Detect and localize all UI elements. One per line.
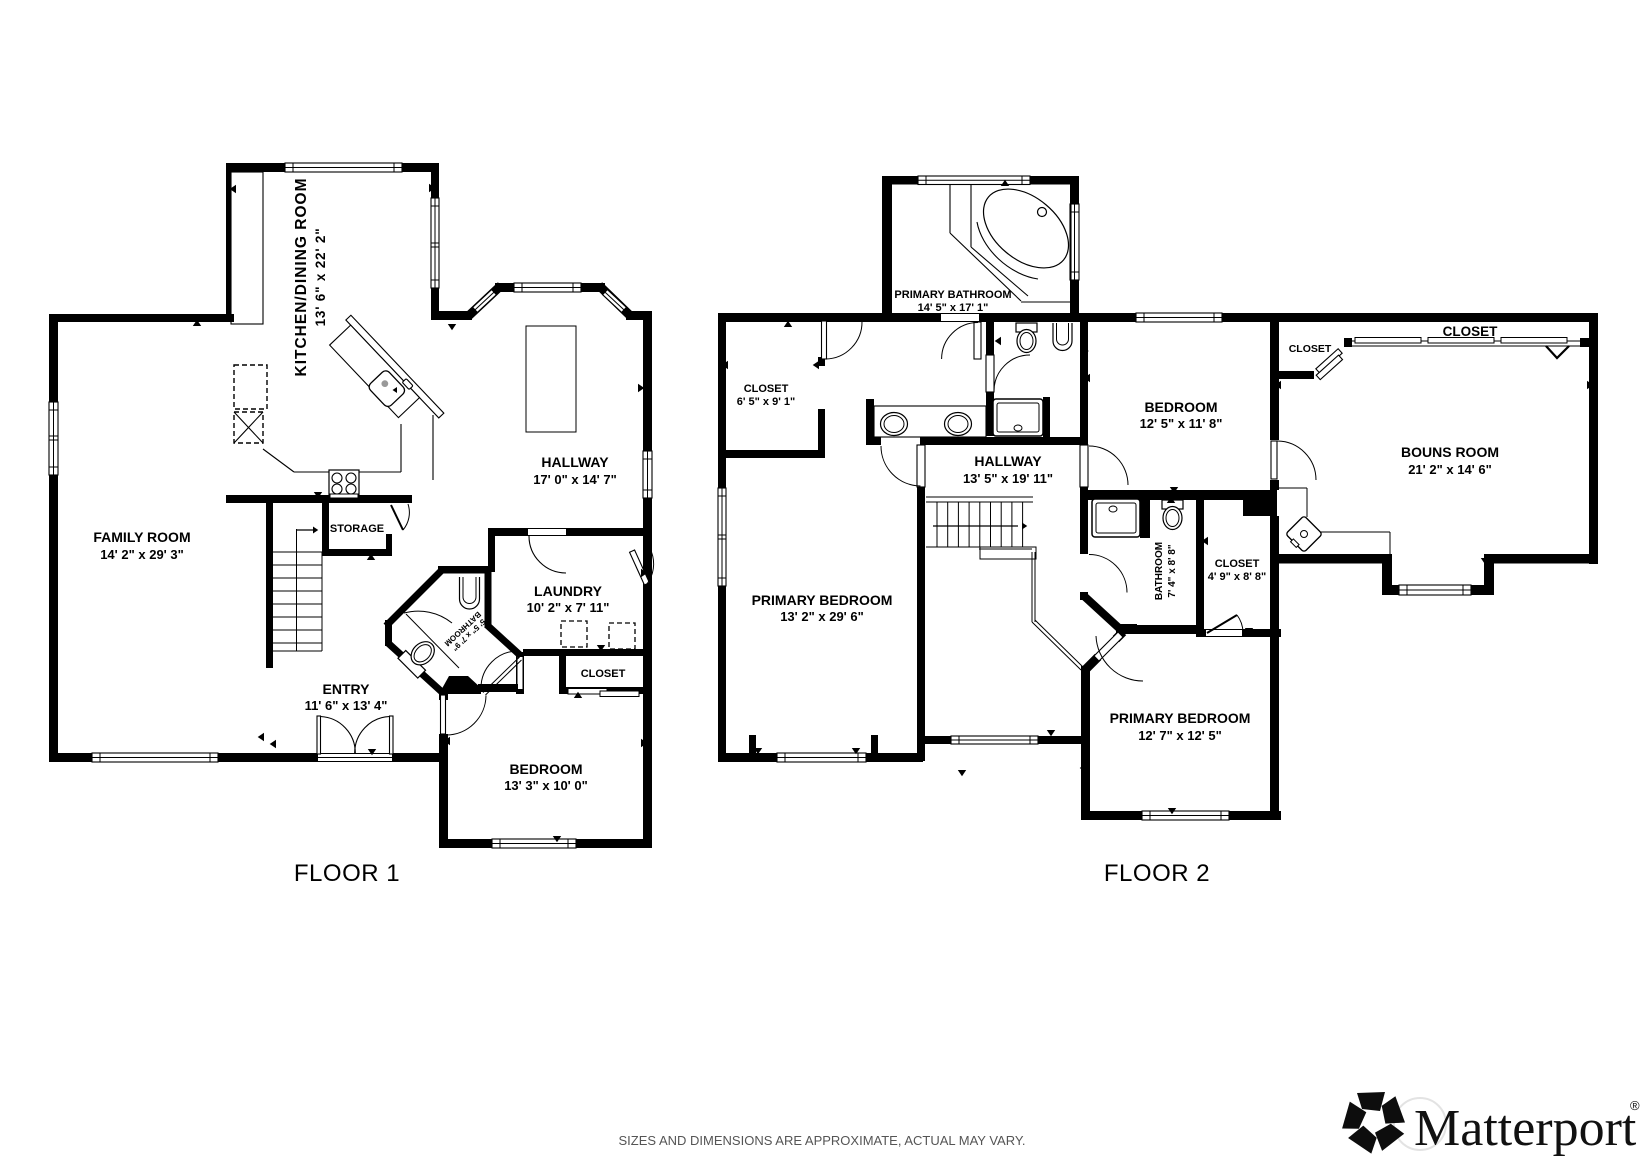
svg-text:BEDROOM: BEDROOM [1144,399,1217,415]
svg-text:STORAGE: STORAGE [330,523,384,535]
svg-text:KITCHEN/DINING ROOM: KITCHEN/DINING ROOM [293,178,310,377]
svg-text:10' 2" x 7' 11": 10' 2" x 7' 11" [527,600,610,615]
svg-text:BOUNS ROOM: BOUNS ROOM [1401,444,1499,460]
svg-text:PRIMARY BEDROOM: PRIMARY BEDROOM [1110,710,1251,726]
svg-text:CLOSET: CLOSET [1443,324,1499,339]
svg-text:CLOSET: CLOSET [1215,558,1260,570]
svg-text:PRIMARY BATHROOM: PRIMARY BATHROOM [894,289,1011,301]
svg-text:14' 5" x 17' 1": 14' 5" x 17' 1" [918,302,989,314]
svg-text:LAUNDRY: LAUNDRY [534,583,603,599]
svg-text:CLOSET: CLOSET [744,383,789,395]
svg-text:21' 2" x 14' 6": 21' 2" x 14' 6" [1408,462,1492,477]
svg-text:17' 0" x 14' 7": 17' 0" x 14' 7" [533,472,617,487]
svg-text:Matterport: Matterport [1414,1100,1637,1157]
svg-text:BATHROOM: BATHROOM [1154,542,1165,600]
svg-text:FLOOR 1: FLOOR 1 [294,860,400,887]
svg-text:13' 5" x 19' 11": 13' 5" x 19' 11" [963,471,1053,486]
svg-text:HALLWAY: HALLWAY [974,453,1042,469]
svg-text:®: ® [1630,1098,1640,1113]
svg-text:6' 5" x 9' 1": 6' 5" x 9' 1" [737,396,795,408]
svg-text:11' 6" x 13' 4": 11' 6" x 13' 4" [305,698,388,713]
svg-text:ENTRY: ENTRY [323,681,371,697]
svg-text:CLOSET: CLOSET [581,668,626,680]
svg-text:PRIMARY BEDROOM: PRIMARY BEDROOM [752,592,893,608]
svg-text:13' 2" x 29' 6": 13' 2" x 29' 6" [780,609,864,624]
svg-text:FLOOR 2: FLOOR 2 [1104,860,1210,887]
svg-text:BEDROOM: BEDROOM [509,761,582,777]
svg-text:HALLWAY: HALLWAY [541,454,609,470]
svg-text:FAMILY ROOM: FAMILY ROOM [93,529,190,545]
svg-text:12' 5" x 11' 8": 12' 5" x 11' 8" [1140,416,1223,431]
svg-text:13' 6" x 22' 2": 13' 6" x 22' 2" [313,228,328,327]
svg-text:13' 3" x 10' 0": 13' 3" x 10' 0" [504,778,588,793]
svg-text:CLOSET: CLOSET [1289,343,1332,355]
svg-text:7' 4" x 8' 8": 7' 4" x 8' 8" [1167,544,1178,597]
svg-text:4' 9" x 8' 8": 4' 9" x 8' 8" [1208,571,1266,583]
svg-text:SIZES AND DIMENSIONS ARE APPRO: SIZES AND DIMENSIONS ARE APPROXIMATE, AC… [619,1133,1026,1148]
svg-text:12' 7" x 12' 5": 12' 7" x 12' 5" [1138,728,1222,743]
svg-text:14' 2" x 29' 3": 14' 2" x 29' 3" [100,547,184,562]
